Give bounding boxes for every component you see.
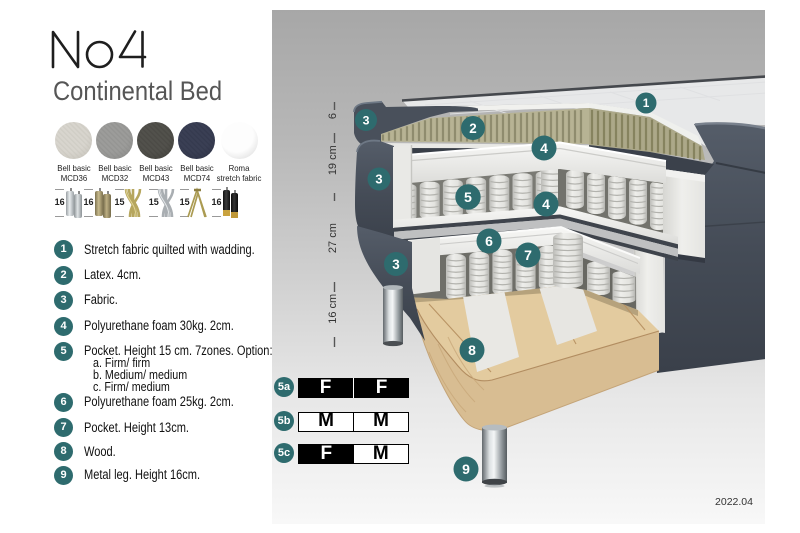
svg-text:7: 7 [524,247,532,263]
svg-text:6: 6 [327,113,339,119]
svg-text:4: 4 [542,196,550,212]
svg-text:4: 4 [540,140,548,156]
svg-text:16 cm: 16 cm [327,294,339,324]
svg-text:3: 3 [363,113,370,127]
svg-text:9: 9 [462,461,470,477]
svg-text:1: 1 [643,96,650,110]
svg-text:27 cm: 27 cm [327,223,339,253]
svg-text:2: 2 [469,121,476,136]
svg-text:3: 3 [375,172,382,187]
svg-text:3: 3 [392,257,399,272]
svg-text:19 cm: 19 cm [327,145,339,175]
svg-text:5: 5 [464,190,472,206]
svg-text:6: 6 [485,233,493,249]
svg-text:8: 8 [468,342,476,358]
